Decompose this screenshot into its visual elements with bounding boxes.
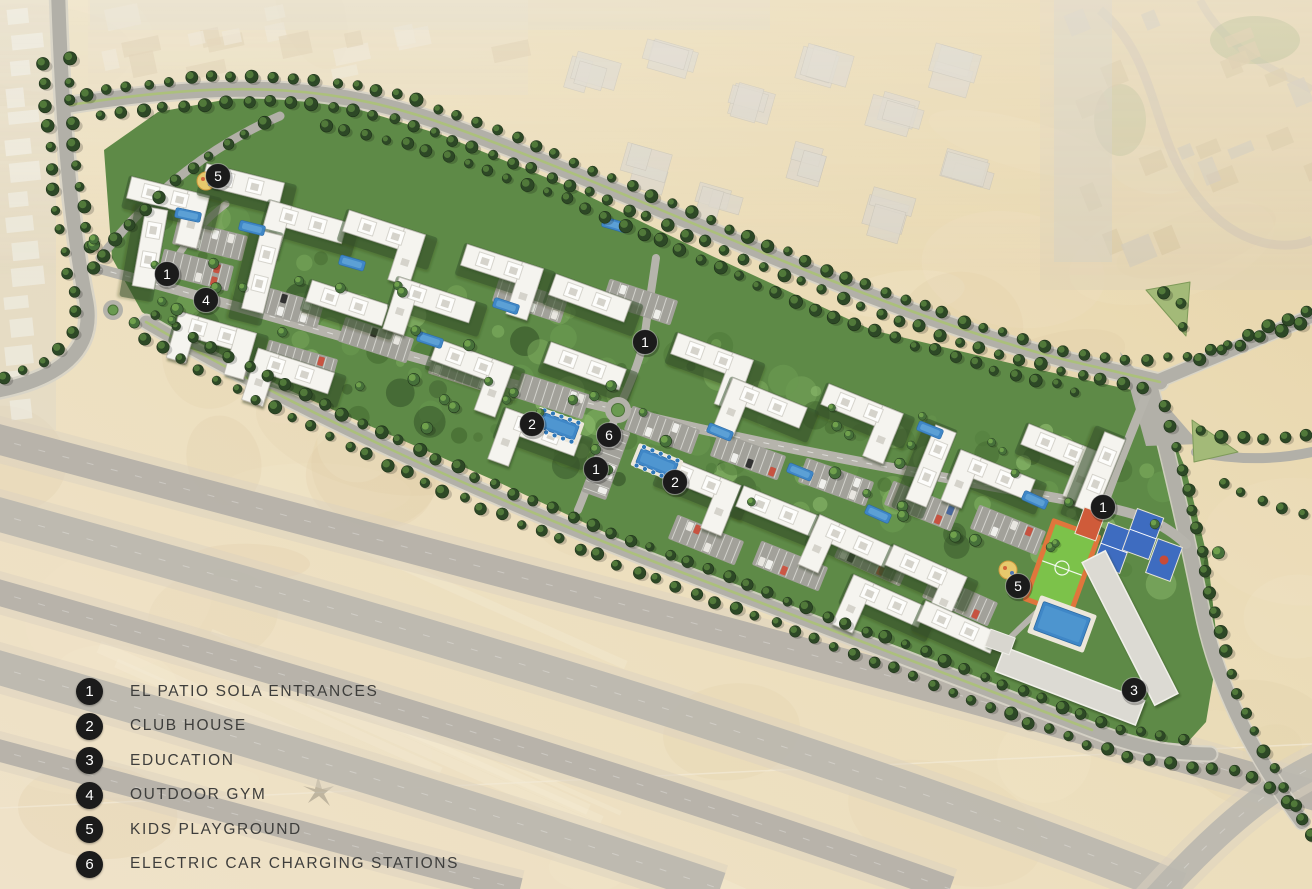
svg-text:4: 4 (202, 292, 210, 308)
legend-item-3: 3EDUCATION (76, 747, 459, 774)
legend-marker-circle: 4 (76, 782, 103, 809)
svg-text:5: 5 (1014, 578, 1022, 594)
legend-label: EDUCATION (130, 752, 235, 770)
svg-text:1: 1 (641, 334, 649, 350)
legend-marker-circle: 1 (76, 678, 103, 705)
svg-text:2: 2 (671, 474, 679, 490)
svg-text:3: 3 (1130, 682, 1138, 698)
legend-label: CLUB HOUSE (130, 717, 247, 735)
svg-text:2: 2 (528, 416, 536, 432)
svg-text:1: 1 (1099, 499, 1107, 515)
svg-text:5: 5 (214, 168, 222, 184)
legend-item-1: 1EL PATIO SOLA ENTRANCES (76, 678, 459, 705)
svg-text:1: 1 (592, 461, 600, 477)
svg-text:1: 1 (163, 266, 171, 282)
legend-marker-circle: 3 (76, 747, 103, 774)
legend-label: ELECTRIC CAR CHARGING STATIONS (130, 855, 459, 873)
legend-label: OUTDOOR GYM (130, 786, 266, 804)
legend-marker-circle: 2 (76, 713, 103, 740)
site-plan-screenshot: 51412612153 1EL PATIO SOLA ENTRANCES2CLU… (0, 0, 1312, 889)
legend: 1EL PATIO SOLA ENTRANCES2CLUB HOUSE3EDUC… (76, 678, 459, 885)
legend-item-2: 2CLUB HOUSE (76, 713, 459, 740)
legend-label: EL PATIO SOLA ENTRANCES (130, 683, 378, 701)
legend-marker-circle: 6 (76, 851, 103, 878)
legend-label: KIDS PLAYGROUND (130, 821, 302, 839)
legend-item-6: 6ELECTRIC CAR CHARGING STATIONS (76, 851, 459, 878)
svg-text:6: 6 (605, 427, 613, 443)
legend-item-5: 5KIDS PLAYGROUND (76, 816, 459, 843)
legend-item-4: 4OUTDOOR GYM (76, 782, 459, 809)
legend-marker-circle: 5 (76, 816, 103, 843)
